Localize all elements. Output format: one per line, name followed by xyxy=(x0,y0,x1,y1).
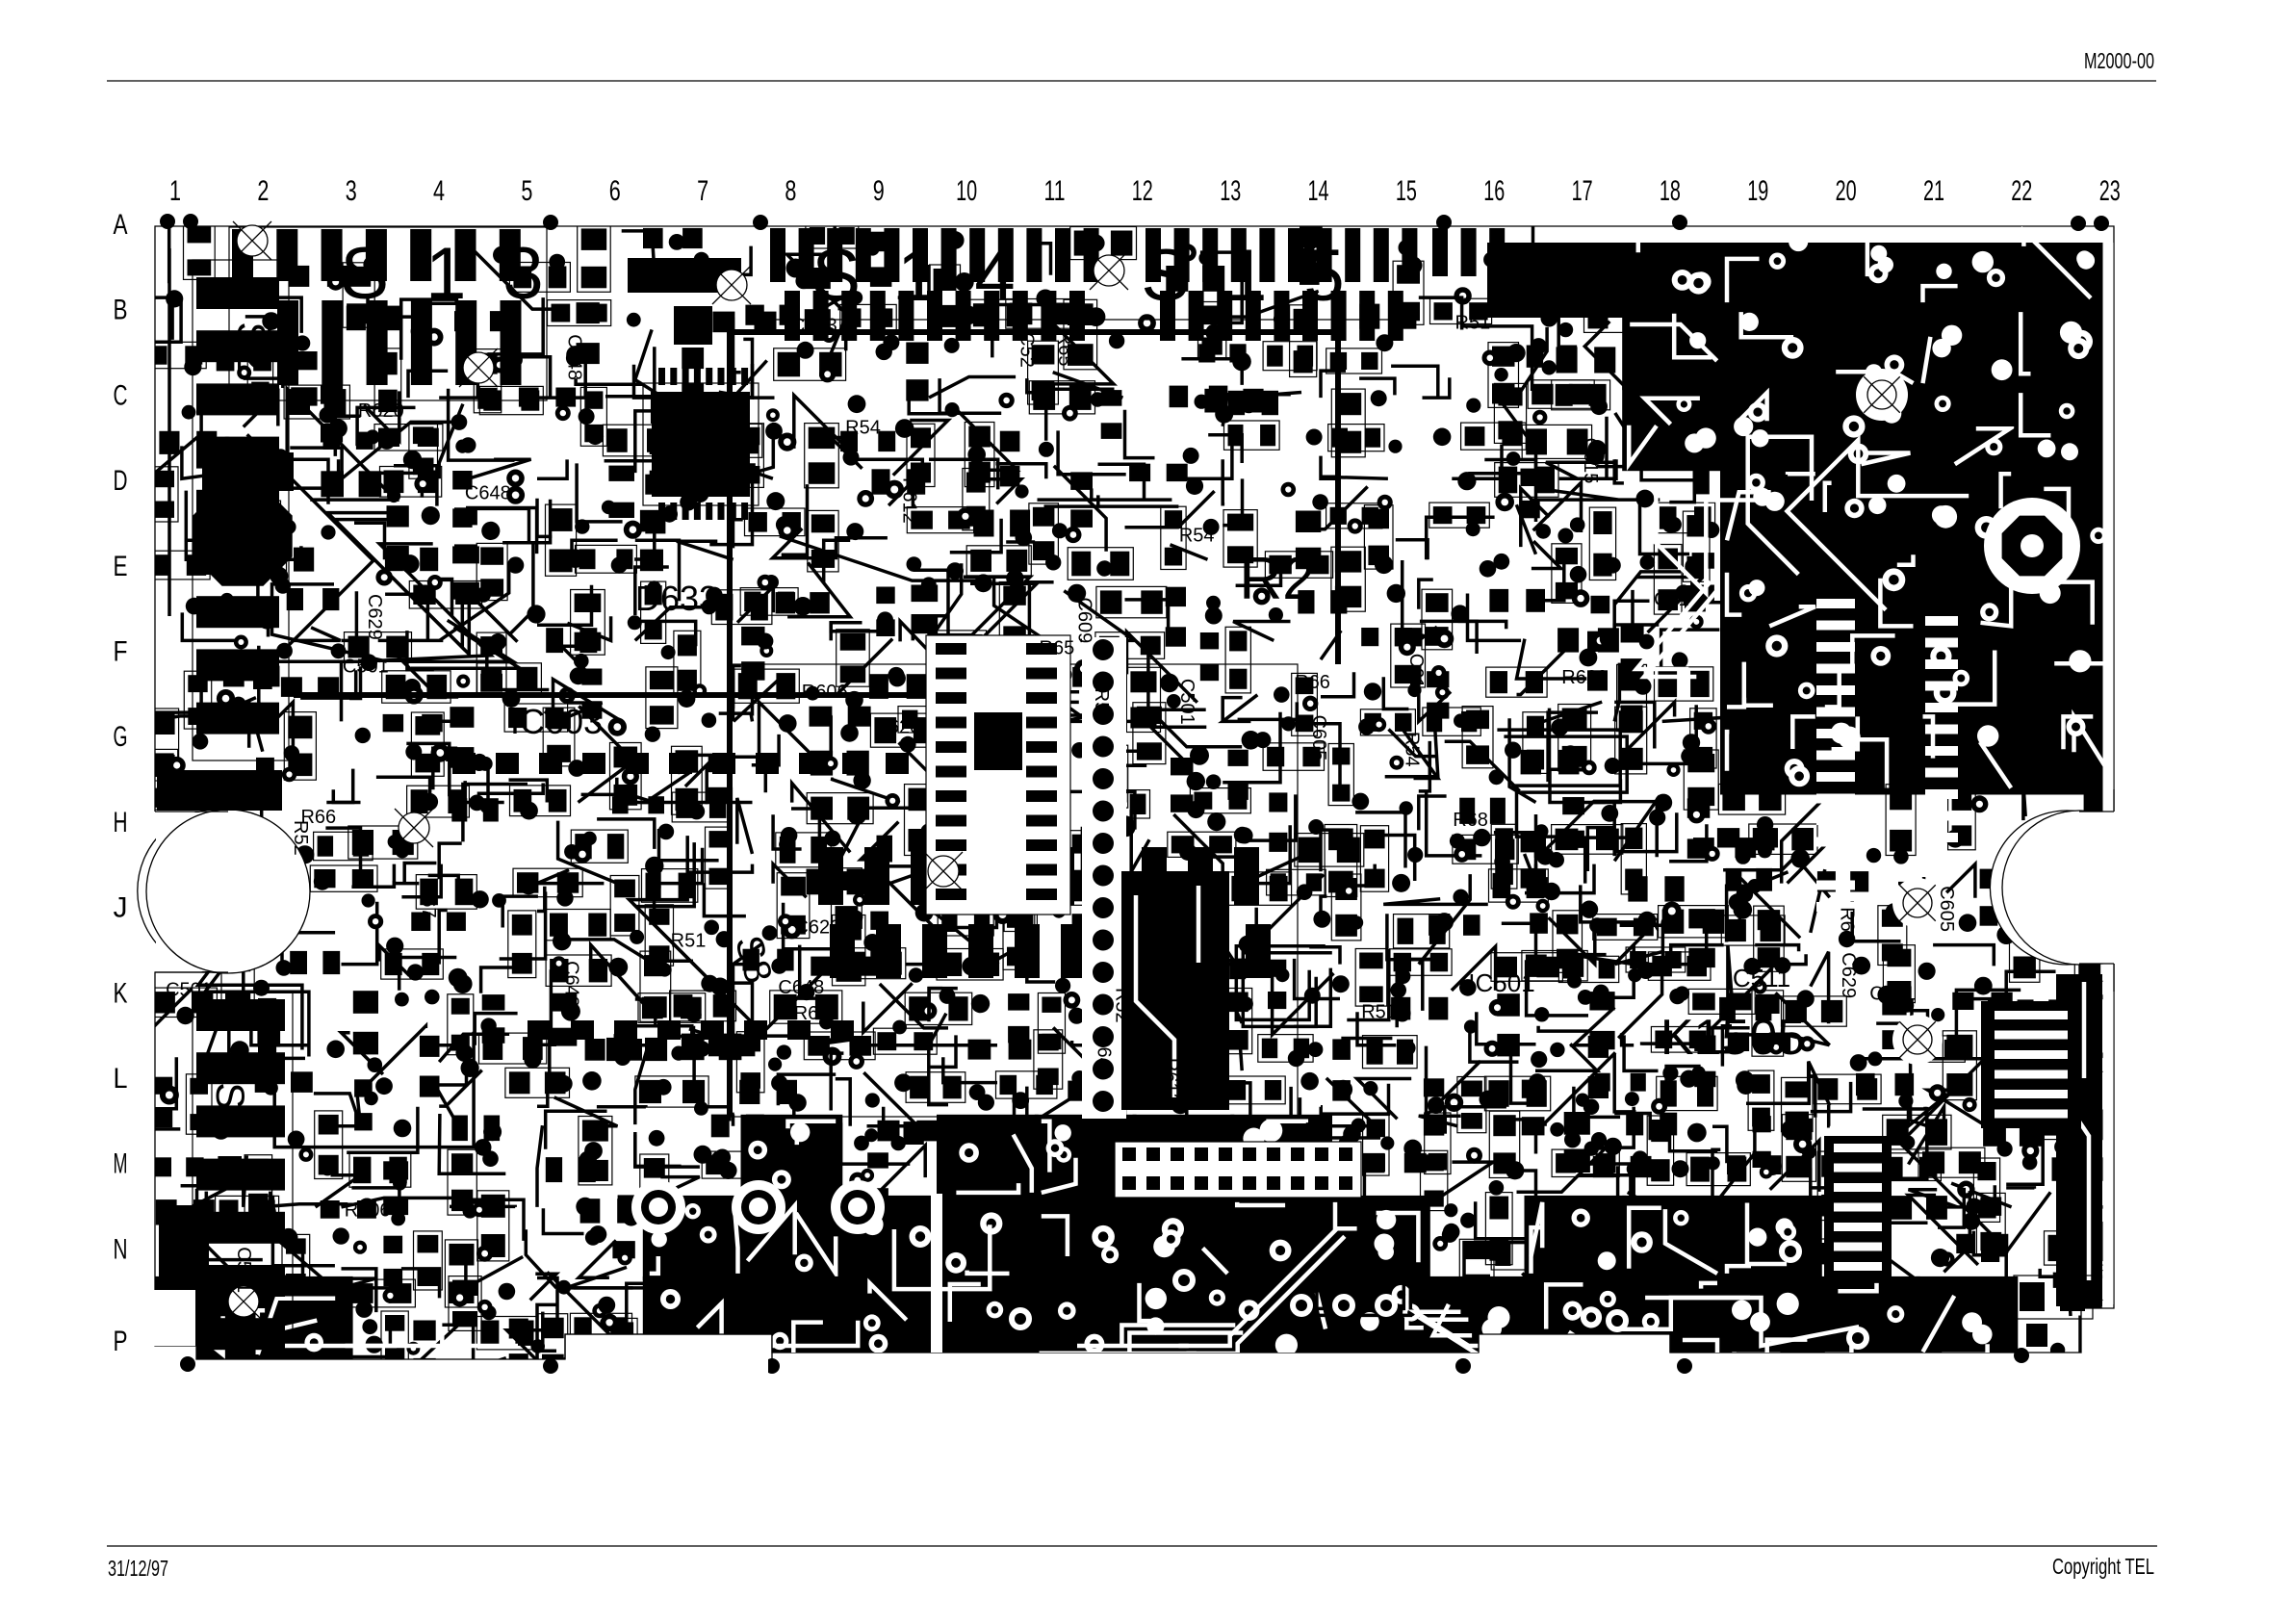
svg-text:9: 9 xyxy=(873,175,885,207)
svg-text:C61: C61 xyxy=(1654,589,1689,610)
svg-text:IC501: IC501 xyxy=(1468,968,1534,997)
svg-text:R620: R620 xyxy=(1561,667,1608,688)
svg-text:L: L xyxy=(114,1063,128,1095)
svg-text:22: 22 xyxy=(2011,175,2032,207)
svg-text:A: A xyxy=(114,209,128,241)
svg-text:R66: R66 xyxy=(1295,672,1330,693)
svg-text:J: J xyxy=(114,892,128,924)
svg-text:M2000-00: M2000-00 xyxy=(2084,48,2154,73)
svg-text:G: G xyxy=(114,721,128,753)
svg-text:20: 20 xyxy=(1836,175,1857,207)
svg-text:IC603: IC603 xyxy=(510,702,603,741)
svg-text:K: K xyxy=(114,977,128,1009)
svg-text:C605: C605 xyxy=(1936,886,1957,932)
svg-text:R52: R52 xyxy=(1112,988,1133,1023)
svg-text:R54: R54 xyxy=(845,418,881,439)
svg-text:R620: R620 xyxy=(874,717,920,738)
svg-text:R612: R612 xyxy=(1160,1058,1181,1104)
svg-text:16: 16 xyxy=(1483,175,1505,207)
svg-text:R67: R67 xyxy=(1646,915,1682,936)
svg-text:P: P xyxy=(114,1326,128,1357)
svg-text:14: 14 xyxy=(1308,175,1329,207)
svg-text:R620: R620 xyxy=(358,400,404,422)
svg-text:R51: R51 xyxy=(1361,1002,1397,1023)
svg-text:D: D xyxy=(114,465,128,497)
svg-text:C501: C501 xyxy=(1869,983,1916,1004)
svg-text:C52: C52 xyxy=(1017,332,1038,368)
svg-text:7: 7 xyxy=(697,175,708,207)
svg-text:R606: R606 xyxy=(345,1200,391,1222)
svg-text:B: B xyxy=(114,295,128,326)
svg-text:11: 11 xyxy=(1044,175,1066,207)
svg-text:1: 1 xyxy=(169,175,181,207)
svg-text:R612: R612 xyxy=(898,477,919,524)
svg-text:R65: R65 xyxy=(794,1003,830,1024)
svg-text:10: 10 xyxy=(956,175,977,207)
svg-text:C629: C629 xyxy=(794,916,840,938)
svg-text:C501: C501 xyxy=(233,1247,254,1293)
svg-text:C: C xyxy=(114,379,128,411)
svg-text:C501: C501 xyxy=(343,657,389,678)
svg-text:E: E xyxy=(114,551,128,582)
svg-text:15: 15 xyxy=(1396,175,1417,207)
svg-text:31/12/97: 31/12/97 xyxy=(108,1556,168,1581)
svg-text:C615: C615 xyxy=(1580,438,1601,484)
svg-text:R66: R66 xyxy=(1837,907,1858,942)
svg-text:N: N xyxy=(114,1233,128,1265)
svg-text:R51: R51 xyxy=(671,930,707,951)
svg-text:R65: R65 xyxy=(1054,331,1075,367)
svg-text:C648: C648 xyxy=(563,334,584,380)
svg-text:R54: R54 xyxy=(1179,526,1215,547)
svg-text:C648: C648 xyxy=(560,961,581,1007)
svg-text:C629: C629 xyxy=(364,594,385,640)
svg-text:5: 5 xyxy=(521,175,532,207)
svg-text:C501: C501 xyxy=(166,980,212,1001)
svg-text:R68: R68 xyxy=(1453,810,1488,831)
svg-text:21: 21 xyxy=(1923,175,1944,207)
svg-text:R67: R67 xyxy=(418,883,439,918)
svg-text:C648: C648 xyxy=(1093,1033,1114,1079)
svg-text:C609: C609 xyxy=(1073,597,1094,643)
svg-text:C648: C648 xyxy=(465,483,511,504)
svg-text:H: H xyxy=(114,807,128,838)
svg-text:R606: R606 xyxy=(802,682,848,703)
svg-text:R65: R65 xyxy=(1040,638,1075,659)
svg-text:C61: C61 xyxy=(1405,654,1427,689)
svg-text:F: F xyxy=(114,636,128,668)
svg-text:K1505: K1505 xyxy=(1660,1010,1805,1066)
svg-text:12: 12 xyxy=(1132,175,1153,207)
svg-text:D633: D633 xyxy=(635,579,718,618)
svg-text:13: 13 xyxy=(1220,175,1241,207)
svg-text:C511: C511 xyxy=(1733,964,1790,992)
svg-text:3: 3 xyxy=(346,175,357,207)
svg-text:2: 2 xyxy=(257,175,269,207)
svg-text:C613: C613 xyxy=(791,316,837,337)
svg-text:6: 6 xyxy=(609,175,621,207)
svg-text:M: M xyxy=(114,1148,128,1180)
svg-text:Copyright TEL: Copyright TEL xyxy=(2052,1554,2154,1579)
svg-text:R51: R51 xyxy=(1455,312,1491,333)
svg-text:18: 18 xyxy=(1660,175,1681,207)
svg-text:R54: R54 xyxy=(1091,688,1112,724)
svg-text:R2: R2 xyxy=(1239,546,1315,612)
svg-text:4: 4 xyxy=(433,175,445,207)
svg-text:8: 8 xyxy=(785,175,796,207)
svg-text:C648: C648 xyxy=(778,977,824,998)
svg-text:C605: C605 xyxy=(1308,715,1329,761)
svg-text:17: 17 xyxy=(1572,175,1593,207)
svg-text:R54: R54 xyxy=(1402,732,1423,767)
svg-text:C501: C501 xyxy=(1176,679,1197,725)
svg-text:R66: R66 xyxy=(300,807,336,828)
svg-text:19: 19 xyxy=(1747,175,1768,207)
svg-text:23: 23 xyxy=(2099,175,2121,207)
svg-text:C629: C629 xyxy=(1838,952,1859,998)
